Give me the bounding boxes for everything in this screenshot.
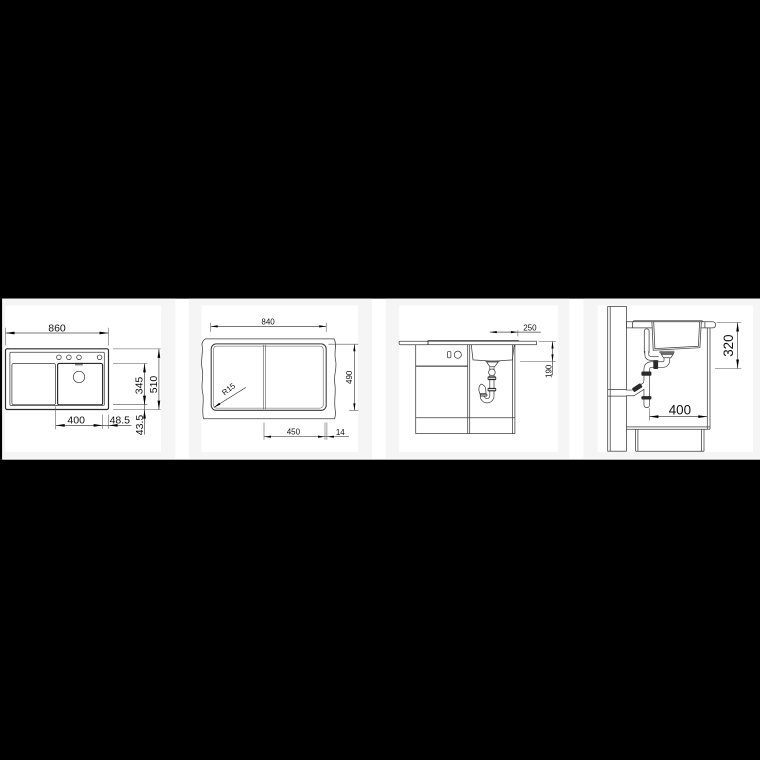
svg-text:345: 345 [133, 377, 145, 395]
svg-text:48.5: 48.5 [110, 415, 131, 427]
svg-text:840: 840 [261, 318, 275, 327]
svg-text:860: 860 [48, 322, 66, 334]
svg-text:510: 510 [148, 376, 160, 394]
svg-text:250: 250 [523, 323, 537, 332]
svg-text:490: 490 [345, 370, 354, 384]
svg-text:14: 14 [336, 428, 345, 437]
svg-text:400: 400 [669, 402, 691, 417]
svg-text:43.5: 43.5 [134, 415, 146, 436]
svg-text:320: 320 [721, 334, 736, 356]
svg-text:400: 400 [67, 415, 85, 427]
svg-text:190: 190 [545, 364, 554, 378]
svg-text:450: 450 [287, 427, 301, 436]
